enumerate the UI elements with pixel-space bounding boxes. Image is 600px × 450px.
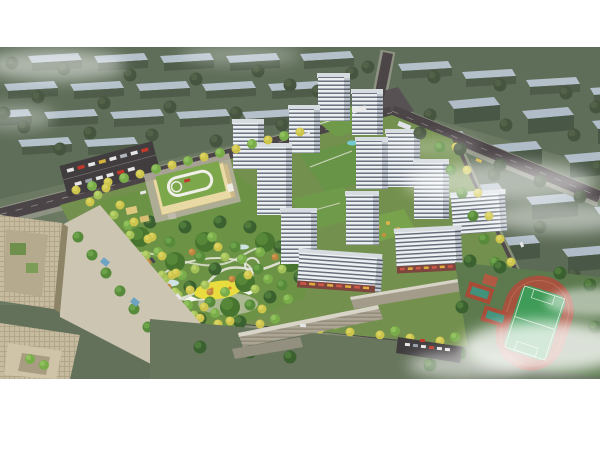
tree [230, 242, 241, 253]
tree [207, 289, 214, 296]
tree [251, 285, 260, 294]
tree [272, 254, 279, 261]
tree [479, 234, 490, 245]
tree [390, 326, 400, 336]
tree [252, 65, 265, 78]
tree [146, 129, 159, 142]
tree [263, 274, 273, 284]
tree [276, 119, 289, 132]
tree [98, 97, 111, 110]
tree [87, 250, 98, 261]
tree [191, 265, 200, 274]
tree [158, 252, 167, 261]
tree [244, 221, 257, 234]
rendering-scene [0, 47, 600, 379]
tree [448, 97, 500, 124]
tree [201, 281, 210, 290]
tree [179, 221, 192, 234]
tree [220, 297, 240, 317]
tree [258, 305, 267, 314]
tree [232, 145, 241, 154]
tree [200, 303, 209, 312]
tree [428, 71, 441, 84]
tree [256, 320, 265, 329]
page [0, 0, 600, 450]
tree [464, 255, 477, 268]
tree [183, 156, 193, 166]
tree [554, 267, 567, 280]
tree [172, 269, 181, 278]
tree [230, 107, 243, 120]
tree [215, 148, 225, 158]
tree [195, 252, 206, 263]
tree [284, 79, 297, 92]
tree [253, 264, 264, 275]
tree [87, 181, 97, 191]
tree [346, 328, 355, 337]
tree [456, 301, 469, 314]
aerial-masterplan-rendering [0, 47, 600, 379]
tree [54, 143, 67, 156]
tree [283, 294, 293, 304]
tree [245, 300, 256, 311]
tree [220, 287, 230, 297]
tree [376, 331, 385, 340]
tree [124, 69, 137, 82]
car [300, 324, 306, 328]
tree [116, 201, 125, 210]
tree [110, 109, 164, 127]
tower [317, 73, 350, 121]
tree [264, 136, 273, 145]
tree [496, 235, 505, 244]
tree [255, 247, 265, 257]
tree [362, 61, 375, 74]
tree [209, 263, 222, 276]
tree [494, 79, 507, 92]
tree [284, 351, 297, 364]
tree [190, 73, 203, 86]
tree [226, 317, 235, 326]
tree [398, 61, 452, 79]
tower [256, 143, 292, 215]
tree [568, 129, 581, 142]
tree [560, 87, 573, 100]
tree [168, 161, 177, 170]
tree [151, 164, 161, 174]
car [420, 339, 425, 342]
tree [270, 314, 280, 324]
tree [164, 101, 177, 114]
tree [522, 107, 574, 134]
slab [394, 225, 464, 273]
tree [189, 249, 196, 256]
tree [144, 235, 153, 244]
tree [73, 232, 84, 243]
tree [207, 232, 217, 242]
tree [102, 184, 111, 193]
tree [210, 135, 223, 148]
tree [229, 276, 236, 283]
tree [221, 253, 230, 262]
tree [136, 81, 190, 99]
tree [296, 128, 305, 137]
tree [4, 81, 58, 99]
tree [300, 51, 354, 69]
tree [279, 131, 289, 141]
tree [115, 286, 126, 297]
tree [101, 268, 112, 279]
tree [129, 304, 140, 315]
tower [288, 105, 320, 153]
tree [32, 91, 45, 104]
tree [214, 216, 227, 229]
tree [247, 139, 257, 149]
tree [202, 81, 256, 99]
tree [136, 170, 145, 179]
tree [200, 153, 209, 162]
slab [296, 248, 384, 293]
tree [468, 211, 479, 222]
tree [119, 173, 129, 183]
tree [264, 291, 277, 304]
tree [186, 286, 195, 295]
tree [70, 81, 124, 99]
tree [39, 360, 49, 370]
tree [462, 69, 516, 87]
tree [277, 280, 288, 291]
tree [507, 258, 516, 267]
tree [25, 354, 35, 364]
tree [165, 237, 176, 248]
tree [86, 198, 95, 207]
tower [345, 191, 379, 245]
tree [94, 191, 103, 200]
tree [176, 109, 230, 127]
tree [278, 265, 287, 274]
tree [194, 341, 207, 354]
tree [72, 186, 81, 195]
tree [500, 119, 513, 132]
tree [237, 254, 247, 264]
tree [130, 218, 139, 227]
tree [450, 332, 460, 342]
tree [244, 271, 253, 280]
tree [494, 261, 507, 274]
tree [84, 127, 97, 140]
tree [210, 308, 220, 318]
tree [214, 243, 223, 252]
